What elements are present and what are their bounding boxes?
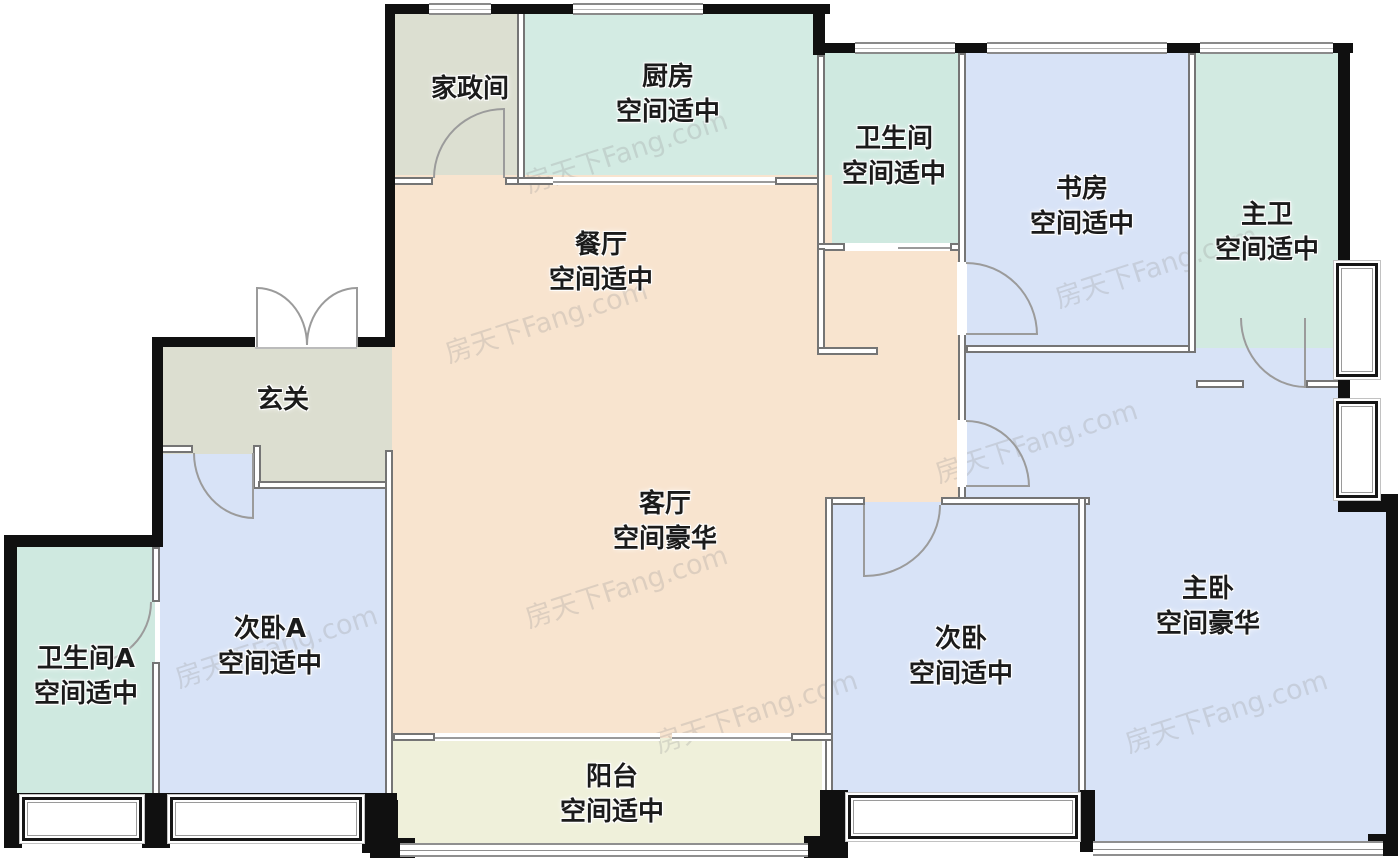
wall-living-balcony-right [791, 733, 833, 741]
label-dining-room: 餐厅 空间适中 [549, 228, 653, 298]
window-study [987, 42, 1167, 54]
room-name: 玄关 [257, 383, 309, 418]
wall-master-bathroom-bottom-right [1306, 380, 1340, 388]
room-grade: 空间适中 [909, 657, 1013, 692]
room-master-bedroom-lower [1082, 500, 1390, 848]
wall-stub-horizontal [817, 347, 878, 355]
room-name: 餐厅 [549, 228, 653, 263]
label-kitchen: 厨房 空间适中 [616, 60, 720, 130]
wall-dining-left-lower [385, 450, 393, 805]
room-grade: 空间适中 [1030, 207, 1134, 242]
wall-entry-left [152, 337, 255, 347]
housekeeping-door-leaf [503, 108, 505, 178]
wall-study-master-bathroom [1188, 53, 1196, 353]
wall-housekeeping-kitchen [517, 10, 525, 180]
room-grade: 空间豪华 [613, 522, 717, 557]
wall-bedroom2-master [1078, 497, 1086, 799]
bedroom-a-door-leaf [252, 453, 254, 519]
post-bottom-left [4, 793, 22, 848]
label-bathroom: 卫生间 空间适中 [842, 122, 946, 192]
room-grade: 空间适中 [34, 677, 138, 712]
wall-right-lower [1386, 494, 1398, 850]
room-grade: 空间适中 [218, 647, 322, 682]
label-bedroom-2: 次卧 空间适中 [909, 622, 1013, 692]
label-balcony: 阳台 空间适中 [560, 760, 664, 830]
window-bathroom [855, 42, 955, 54]
wall-bathroom-left [817, 55, 825, 251]
label-master-bathroom: 主卫 空间适中 [1215, 198, 1319, 268]
balcony-sliding-door-left [435, 733, 660, 741]
room-grade: 空间适中 [842, 157, 946, 192]
label-master-bedroom: 主卧 空间豪华 [1156, 572, 1260, 642]
room-grade: 空间豪华 [1156, 607, 1260, 642]
room-name: 次卧A [218, 612, 322, 647]
label-living-room: 客厅 空间豪华 [613, 487, 717, 557]
balcony-railing [400, 843, 808, 857]
window-master-bathroom [1200, 42, 1333, 54]
wall-bedroom2-top-left [830, 497, 865, 505]
room-name: 次卧 [909, 622, 1013, 657]
bay-window-master-bedroom [1336, 401, 1378, 498]
bay-window-master-bathroom [1336, 263, 1378, 377]
room-grade: 空间适中 [560, 795, 664, 830]
label-bathroom-a: 卫生间A 空间适中 [34, 642, 138, 712]
room-name: 书房 [1030, 172, 1134, 207]
room-name: 厨房 [616, 60, 720, 95]
room-grade: 空间适中 [1215, 233, 1319, 268]
window-kitchen [573, 3, 703, 15]
wall-bedroom-a-top [258, 481, 393, 489]
wall-stub-vertical [817, 248, 825, 355]
label-study: 书房 空间适中 [1030, 172, 1134, 242]
balcony-sliding-door-right [672, 733, 791, 741]
wall-master-bathroom-bottom-left [1196, 380, 1244, 388]
wall-right-upper [1338, 43, 1350, 269]
room-name: 主卫 [1215, 198, 1319, 233]
study-door-leaf [966, 333, 1038, 335]
wall-study-bottom [966, 345, 1193, 353]
wall-housekeeping-bottom-left [390, 177, 433, 185]
label-bedroom-a: 次卧A 空间适中 [218, 612, 322, 682]
bathroom-sliding-door [898, 243, 950, 251]
wall-bathroom-a-top [4, 535, 163, 547]
entry-door-leaf-right [356, 287, 358, 347]
wall-living-balcony-left [393, 733, 435, 741]
post-bottom-mid [142, 793, 170, 848]
room-grade: 空间适中 [616, 95, 720, 130]
room-name: 卫生间A [34, 642, 138, 677]
room-name: 客厅 [613, 487, 717, 522]
bedroom-2-door-leaf [863, 505, 865, 577]
label-housekeeping: 家政间 [431, 72, 509, 107]
room-grade: 空间适中 [549, 263, 653, 298]
wall-left-upper [385, 4, 395, 347]
floor-plan: 房天下Fang.com 房天下Fang.com 房天下Fang.com 房天下F… [0, 0, 1400, 862]
wall-kitchen-bottom-left [517, 177, 555, 185]
room-name: 卫生间 [842, 122, 946, 157]
master-bedroom-bottom-window [1093, 841, 1383, 856]
wall-hall-left [152, 337, 163, 547]
label-entryway: 玄关 [257, 383, 309, 418]
wall-bathroom-a-divider-lower [152, 662, 160, 799]
room-corridor [820, 247, 966, 503]
wall-bedroom2-left [825, 497, 833, 799]
wall-bedroom2-top-right [941, 497, 1090, 505]
wall-kitchen-bottom-right [775, 177, 820, 185]
room-name: 阳台 [560, 760, 664, 795]
entry-door-arc-right [306, 287, 357, 345]
master-bathroom-door-leaf [1304, 318, 1306, 388]
bathroom-door-opening [845, 243, 898, 251]
entry-door-arc-left [257, 287, 308, 345]
bay-window-bedroom-a [170, 797, 362, 841]
bay-window-bedroom-2 [848, 795, 1078, 839]
entry-door-leaf-left [256, 287, 258, 347]
room-name: 家政间 [431, 72, 509, 107]
window-housekeeping [429, 3, 491, 15]
bay-window-bathroom-a [22, 797, 142, 841]
kitchen-sliding-opening [553, 177, 775, 185]
post-bay2-left [820, 790, 848, 845]
wall-bathroom-a-divider-upper [152, 547, 160, 602]
wall-entry-right [357, 337, 395, 347]
room-name: 主卧 [1156, 572, 1260, 607]
master-bedroom-door-leaf [966, 485, 1030, 487]
